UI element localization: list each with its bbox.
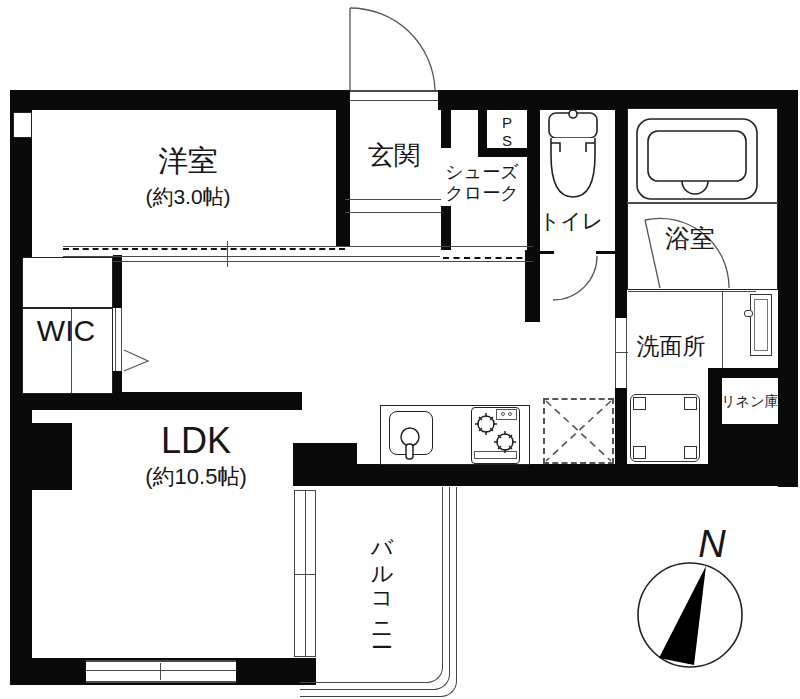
room-label-toilet: トイレ — [539, 209, 603, 233]
room-label-balcony: バルコニー — [367, 523, 397, 638]
compass-north-label: N — [698, 523, 725, 567]
sink-faucet-icon — [401, 428, 419, 459]
stove-burners-icon — [475, 413, 516, 453]
shoe-closet-line2: クローク — [445, 183, 518, 204]
wic-door-icon — [124, 350, 148, 371]
room-label-linen: リネン庫 — [722, 393, 779, 409]
compass-icon — [638, 563, 742, 667]
ps-line1: P — [502, 114, 512, 132]
entrance-door-swing — [350, 8, 435, 90]
room-label-entrance: 玄関 — [368, 141, 420, 171]
shoe-closet-line1: シューズ — [445, 162, 518, 183]
room-label-ldk: LDK — [161, 420, 231, 461]
room-size-western: (約3.0帖) — [145, 185, 230, 209]
room-label-bathroom: 浴室 — [665, 224, 715, 253]
room-label-ps: P S — [502, 114, 512, 150]
ps-line2: S — [502, 132, 512, 150]
bathtub-icon — [637, 119, 757, 199]
room-label-shoe-closet: シューズ クローク — [445, 162, 518, 203]
floor-plan: 洋室 (約3.0帖) 玄関 シューズ クローク P S トイレ 浴室 WIC 洗… — [0, 0, 800, 699]
toilet-door-swing — [553, 256, 597, 300]
fridge-space-x — [546, 401, 611, 461]
room-label-wic: WIC — [37, 314, 95, 349]
room-label-washroom: 洗面所 — [637, 333, 706, 359]
room-label-western: 洋室 — [158, 144, 218, 179]
room-size-ldk: (約10.5帖) — [145, 464, 246, 489]
toilet-fixture-icon — [549, 110, 597, 197]
